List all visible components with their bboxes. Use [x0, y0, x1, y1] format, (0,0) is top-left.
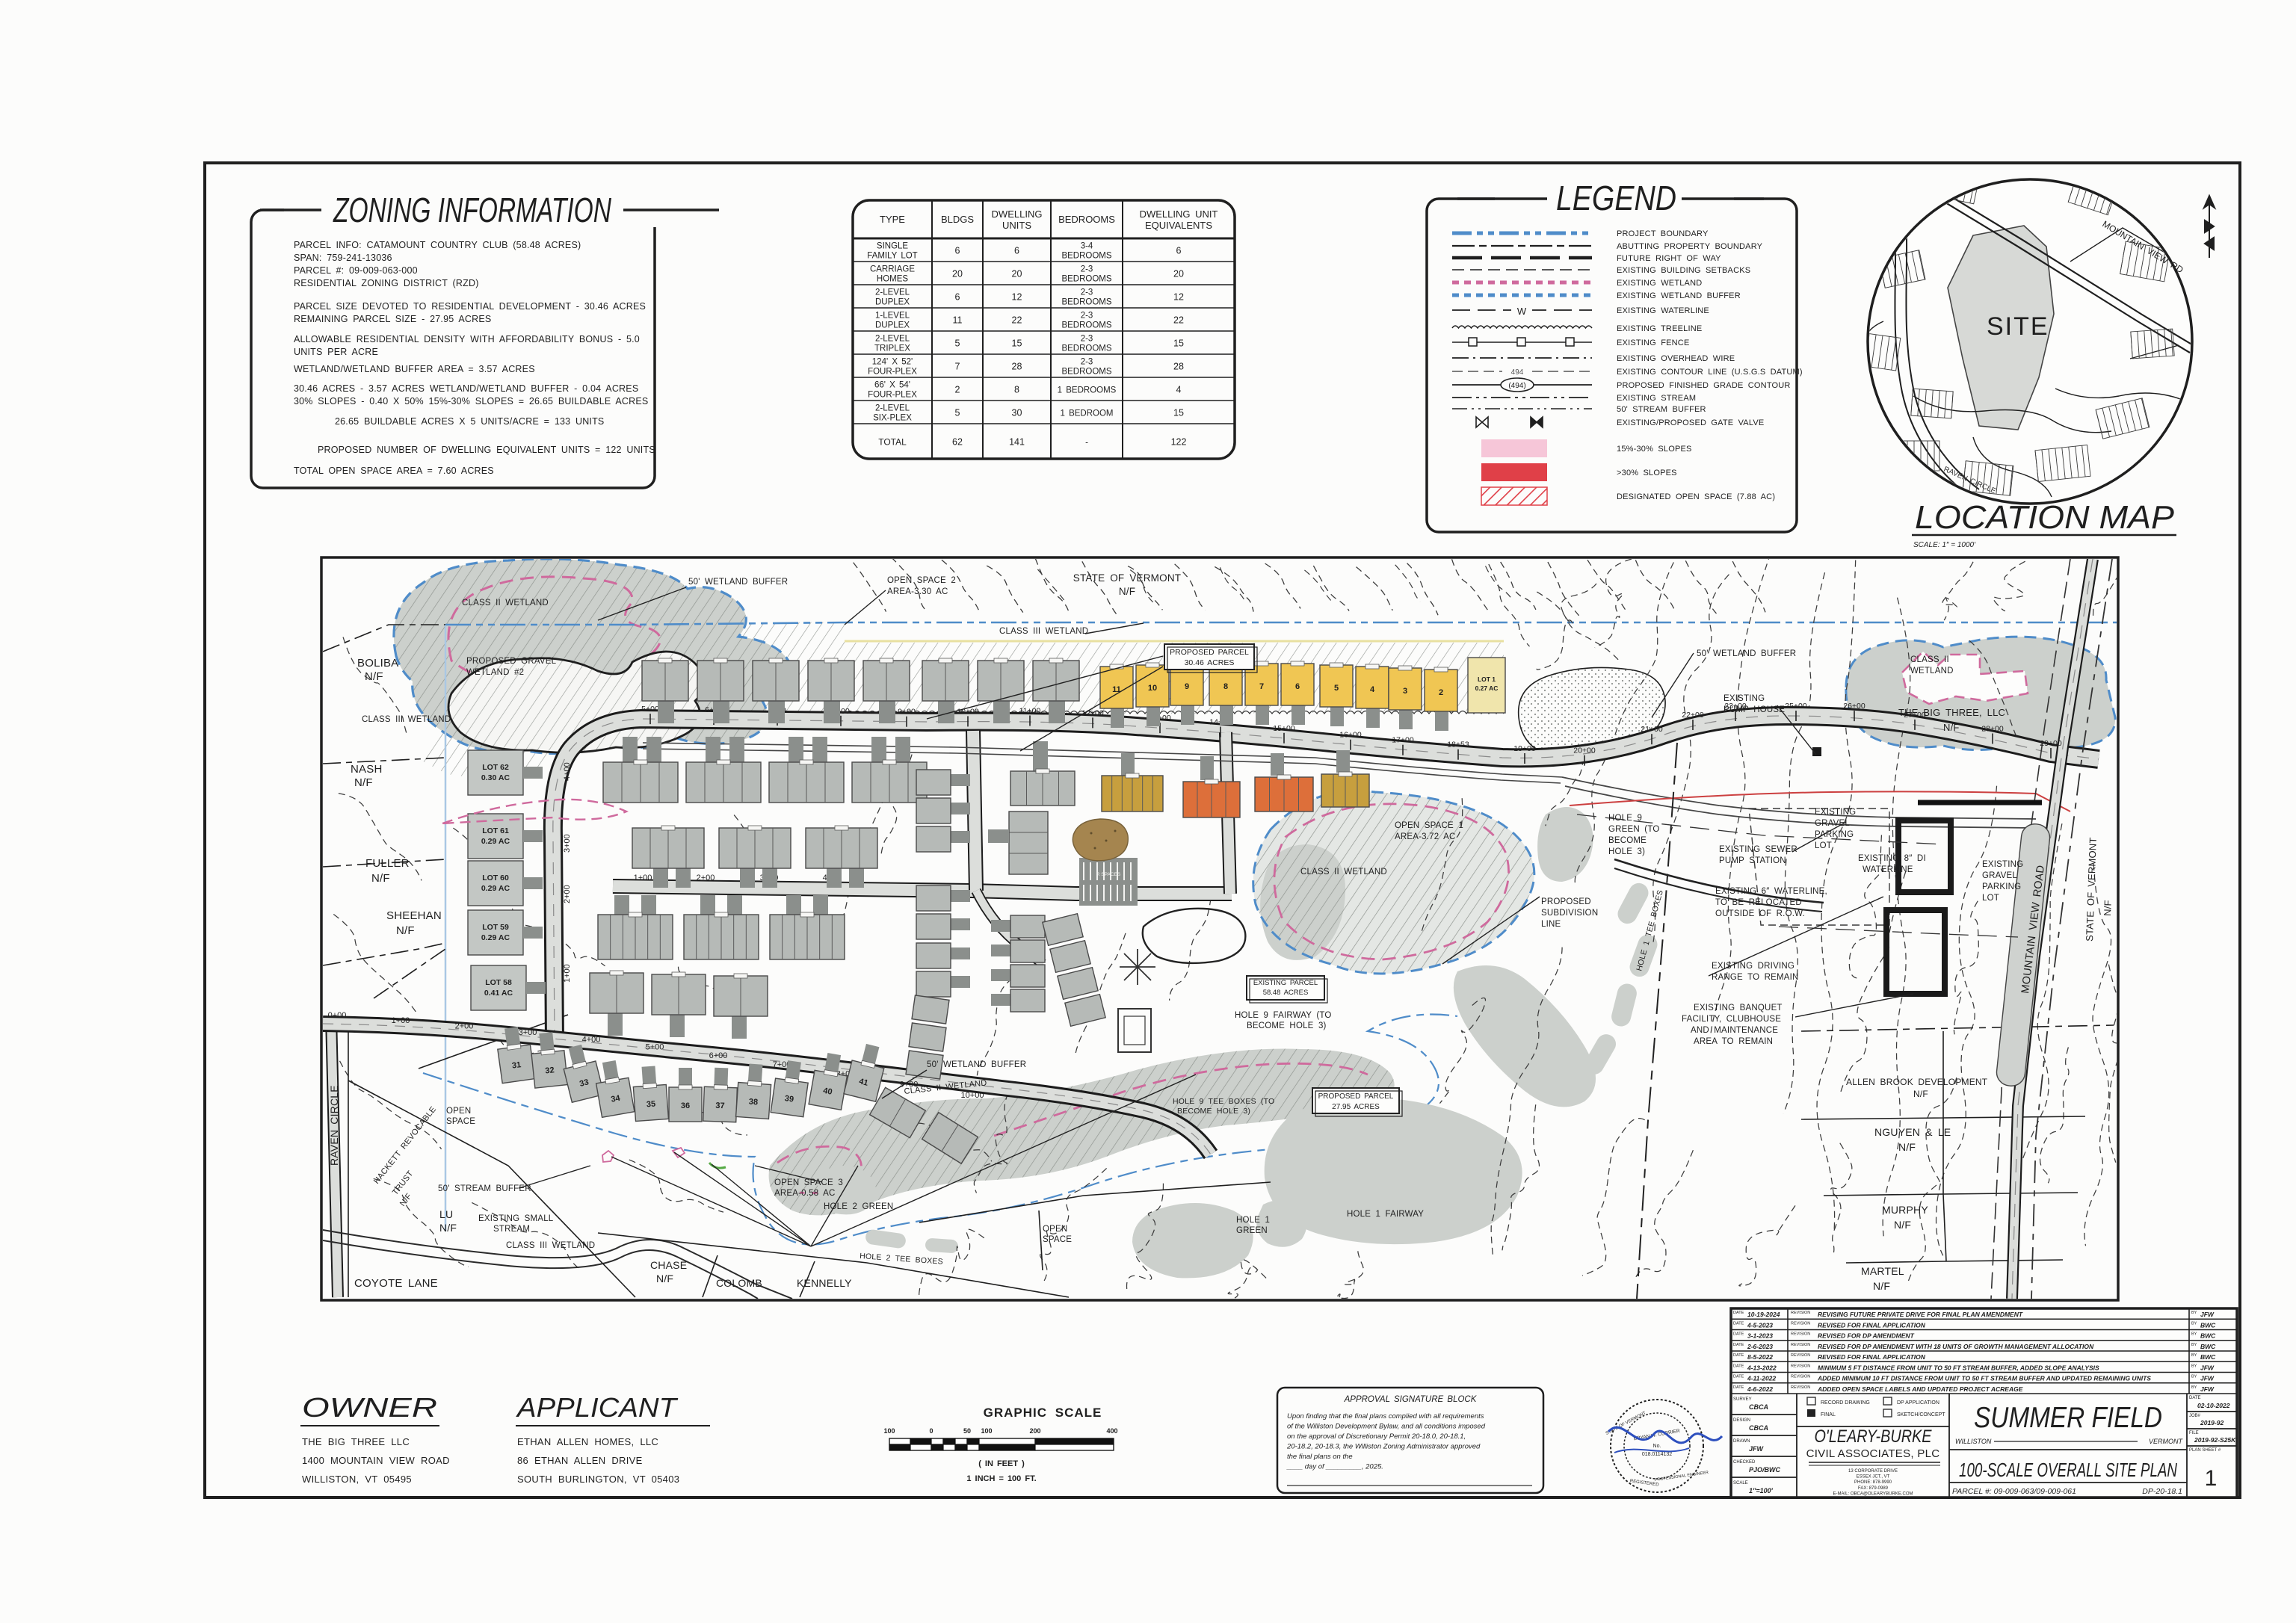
svg-text:26+00: 26+00 — [1843, 702, 1865, 711]
svg-text:10-19-2024: 10-19-2024 — [1747, 1311, 1780, 1318]
svg-text:2: 2 — [955, 385, 960, 395]
svg-text:OPEN SPACE 1: OPEN SPACE 1 — [1395, 821, 1463, 830]
svg-text:MINIMUM 5 FT DISTANCE FROM UNI: MINIMUM 5 FT DISTANCE FROM UNIT TO 50 FT… — [1818, 1364, 2099, 1371]
svg-text:50' STREAM BUFFER: 50' STREAM BUFFER — [438, 1184, 531, 1193]
svg-text:27.95 ACRES: 27.95 ACRES — [1332, 1103, 1380, 1111]
svg-text:FOUR-PLEX: FOUR-PLEX — [868, 391, 917, 400]
svg-text:DESIGNATED OPEN SPACE (7.88 AC: DESIGNATED OPEN SPACE (7.88 AC) — [1617, 492, 1775, 501]
svg-text:2-3: 2-3 — [1081, 358, 1093, 367]
svg-text:21+00: 21+00 — [1641, 725, 1663, 734]
svg-text:SINGLE: SINGLE — [877, 242, 909, 251]
svg-text:on the approval of Discretiona: on the approval of Discretionary Permit … — [1287, 1432, 1466, 1441]
svg-text:W: W — [1517, 306, 1527, 317]
svg-text:TYPE: TYPE — [880, 214, 905, 225]
svg-text:JOB#: JOB# — [2189, 1414, 2201, 1418]
svg-text:1+00: 1+00 — [392, 1016, 410, 1025]
svg-text:MARTEL: MARTEL — [1861, 1265, 1904, 1277]
svg-text:STATE OF VERMONT: STATE OF VERMONT — [1073, 572, 1181, 584]
svg-text:DATE: DATE — [1733, 1364, 1744, 1368]
svg-text:9+00: 9+00 — [898, 708, 916, 717]
svg-text:018.0114132: 018.0114132 — [1642, 1452, 1672, 1457]
svg-text:31: 31 — [511, 1060, 522, 1071]
svg-text:4: 4 — [1370, 685, 1375, 694]
svg-text:LOT 1: LOT 1 — [1478, 676, 1496, 683]
svg-text:12: 12 — [1173, 292, 1184, 303]
svg-text:No.: No. — [1653, 1444, 1661, 1449]
svg-text:15%-30% SLOPES: 15%-30% SLOPES — [1617, 445, 1692, 454]
svg-text:ESSEX JCT., VT: ESSEX JCT., VT — [1857, 1475, 1890, 1480]
svg-text:BEDROOMS: BEDROOMS — [1061, 344, 1111, 353]
svg-text:DP-20-18.1: DP-20-18.1 — [2142, 1487, 2182, 1496]
svg-text:UNITS: UNITS — [1002, 220, 1031, 231]
svg-text:TRIPLEX: TRIPLEX — [874, 344, 910, 353]
svg-text:APPROVAL SIGNATURE BLOCK: APPROVAL SIGNATURE BLOCK — [1344, 1395, 1478, 1404]
svg-text:50' STREAM BUFFER: 50' STREAM BUFFER — [1617, 405, 1706, 414]
svg-text:25+00: 25+00 — [1785, 702, 1807, 711]
svg-text:LOT 61: LOT 61 — [482, 826, 509, 835]
svg-text:BWC: BWC — [2200, 1321, 2216, 1329]
svg-text:PARCEL SIZE DEVOTED TO RESIDEN: PARCEL SIZE DEVOTED TO RESIDENTIAL DEVEL… — [294, 301, 646, 312]
svg-text:RECORD DRAWING: RECORD DRAWING — [1821, 1400, 1870, 1406]
svg-text:EXISTING: EXISTING — [1982, 860, 2023, 869]
svg-text:THE BIG THREE, LLC: THE BIG THREE, LLC — [1898, 707, 2005, 718]
svg-text:2-LEVEL: 2-LEVEL — [875, 288, 910, 297]
svg-text:OPEN: OPEN — [1043, 1225, 1067, 1234]
svg-text:EXISTING OVERHEAD WIRE: EXISTING OVERHEAD WIRE — [1617, 354, 1735, 363]
svg-text:DATE: DATE — [1733, 1321, 1744, 1326]
svg-text:of the Williston Development B: of the Williston Development Bylaw, and … — [1287, 1423, 1486, 1431]
svg-text:N/F: N/F — [396, 924, 415, 937]
svg-text:36: 36 — [681, 1101, 690, 1110]
svg-text:28: 28 — [1012, 362, 1022, 372]
svg-text:DATE: DATE — [1733, 1343, 1744, 1347]
svg-text:N/F: N/F — [1913, 1089, 1928, 1099]
svg-text:PROPOSED PARCEL: PROPOSED PARCEL — [1170, 648, 1249, 657]
svg-text:N/F: N/F — [354, 776, 373, 789]
svg-text:494: 494 — [1511, 368, 1524, 377]
svg-text:COLOMB: COLOMB — [716, 1277, 762, 1289]
svg-text:2-LEVEL: 2-LEVEL — [875, 335, 910, 344]
svg-text:32: 32 — [545, 1066, 555, 1075]
svg-text:the final plans on the: the final plans on the — [1287, 1453, 1353, 1461]
svg-text:RAVEN CIRCLE: RAVEN CIRCLE — [328, 1085, 340, 1166]
svg-text:50' WETLAND BUFFER: 50' WETLAND BUFFER — [1697, 649, 1796, 658]
svg-text:20-18.2, 20-18.3, the Willist: 20-18.2, 20-18.3, the Williston Zoning A… — [1286, 1443, 1481, 1451]
svg-text:BY: BY — [2191, 1385, 2197, 1390]
svg-text:FAX: 879-0989: FAX: 879-0989 — [1858, 1486, 1889, 1491]
svg-text:SCALE: 1″ = 1000′: SCALE: 1″ = 1000′ — [1913, 541, 1976, 549]
svg-text:22: 22 — [1012, 315, 1022, 326]
svg-text:0.30 AC: 0.30 AC — [481, 773, 510, 782]
svg-text:SOUTH BURLINGTON, VT 05403: SOUTH BURLINGTON, VT 05403 — [517, 1474, 679, 1485]
svg-text:100: 100 — [883, 1427, 895, 1435]
svg-text:BY: BY — [2191, 1364, 2197, 1368]
svg-text:SPACE: SPACE — [446, 1117, 475, 1126]
svg-text:DATE: DATE — [1733, 1353, 1744, 1358]
svg-text:PARCEL #: 09-009-063/09-009-06: PARCEL #: 09-009-063/09-009-061 — [1952, 1487, 2076, 1496]
svg-text:DRAWN: DRAWN — [1733, 1439, 1750, 1444]
svg-text:2019-92-S25K: 2019-92-S25K — [2194, 1436, 2236, 1444]
svg-text:3-4: 3-4 — [1081, 242, 1093, 251]
svg-text:9: 9 — [1185, 682, 1189, 691]
svg-text:5: 5 — [955, 338, 960, 349]
svg-text:6: 6 — [955, 246, 960, 256]
svg-text:SUMMER FIELD: SUMMER FIELD — [1974, 1402, 2162, 1434]
svg-text:20: 20 — [952, 269, 963, 279]
svg-text:28+00: 28+00 — [1981, 725, 2004, 734]
svg-text:2-3: 2-3 — [1081, 265, 1093, 274]
svg-text:15: 15 — [1173, 408, 1184, 418]
svg-text:20+00: 20+00 — [1573, 746, 1596, 755]
svg-text:DUPLEX: DUPLEX — [875, 321, 910, 330]
svg-text:EXISTING 6″ WATERLINE,: EXISTING 6″ WATERLINE, — [1715, 887, 1827, 896]
svg-text:30.46 ACRES: 30.46 ACRES — [1185, 658, 1235, 667]
svg-text:PROJECT BOUNDARY: PROJECT BOUNDARY — [1617, 229, 1709, 238]
svg-text:N/F: N/F — [1873, 1280, 1890, 1292]
svg-text:86 ETHAN ALLEN DRIVE: 86 ETHAN ALLEN DRIVE — [517, 1455, 643, 1466]
svg-text:AREA-3.30 AC: AREA-3.30 AC — [887, 587, 948, 596]
svg-text:28: 28 — [1173, 362, 1184, 372]
svg-text:GRAVEL: GRAVEL — [1982, 871, 2017, 880]
svg-text:4: 4 — [1176, 385, 1182, 395]
svg-text:1-LEVEL: 1-LEVEL — [875, 312, 910, 321]
svg-text:35: 35 — [646, 1100, 656, 1110]
svg-text:FUTURE RIGHT OF WAY: FUTURE RIGHT OF WAY — [1617, 254, 1721, 263]
svg-text:0+00: 0+00 — [328, 1011, 347, 1020]
svg-text:DUPLEX: DUPLEX — [875, 298, 910, 307]
svg-text:TOTAL: TOTAL — [878, 437, 907, 448]
svg-text:PARKING: PARKING — [1815, 830, 1854, 839]
svg-text:10+00: 10+00 — [961, 1091, 984, 1100]
svg-text:2+00: 2+00 — [697, 874, 715, 882]
svg-text:2: 2 — [1439, 688, 1443, 697]
svg-text:4-6-2022: 4-6-2022 — [1747, 1385, 1773, 1393]
svg-text:CLASS II WETLAND: CLASS II WETLAND — [462, 599, 549, 608]
svg-text:WILLISTON: WILLISTON — [1955, 1438, 1992, 1445]
svg-text:DATE: DATE — [2189, 1396, 2201, 1400]
svg-text:TO BE RELOCATED: TO BE RELOCATED — [1715, 898, 1802, 907]
svg-text:1400 MOUNTAIN VIEW ROAD: 1400 MOUNTAIN VIEW ROAD — [302, 1455, 450, 1466]
svg-text:GREEN (TO: GREEN (TO — [1608, 825, 1659, 834]
svg-text:BEDROOMS: BEDROOMS — [1061, 275, 1111, 284]
svg-text:____ day of _________, 2025.: ____ day of _________, 2025. — [1286, 1463, 1383, 1471]
svg-text:EXISTING CONTOUR LINE (U.S.G.S: EXISTING CONTOUR LINE (U.S.G.S DATUM) — [1617, 368, 1803, 377]
svg-text:CLASS III WETLAND: CLASS III WETLAND — [506, 1241, 595, 1250]
svg-text:SKETCH/CONCEPT: SKETCH/CONCEPT — [1897, 1412, 1945, 1418]
svg-text:EXISTING: EXISTING — [1815, 808, 1856, 817]
svg-text:EXISTING BUILDING SETBACKS: EXISTING BUILDING SETBACKS — [1617, 266, 1750, 275]
svg-text:6: 6 — [955, 292, 960, 303]
svg-text:16+00: 16+00 — [1339, 731, 1362, 740]
svg-text:11: 11 — [1112, 685, 1121, 694]
svg-text:15+00: 15+00 — [1273, 724, 1295, 733]
svg-text:LINE: LINE — [1541, 920, 1561, 929]
svg-text:CBCA: CBCA — [1749, 1403, 1768, 1411]
svg-text:8: 8 — [1223, 682, 1228, 691]
svg-text:SCALE: SCALE — [1733, 1481, 1748, 1486]
svg-text:AND MAINTENANCE: AND MAINTENANCE — [1691, 1026, 1778, 1035]
svg-text:>30% SLOPES: >30% SLOPES — [1617, 469, 1677, 477]
svg-text:BEDROOMS: BEDROOMS — [1061, 321, 1111, 330]
svg-text:6: 6 — [1295, 682, 1300, 691]
svg-text:EQUIVALENTS: EQUIVALENTS — [1145, 220, 1212, 231]
svg-text:1 INCH = 100 FT.: 1 INCH = 100 FT. — [966, 1474, 1036, 1483]
svg-text:30: 30 — [1012, 408, 1022, 418]
svg-text:WILLISTON, VT 05495: WILLISTON, VT 05495 — [302, 1474, 412, 1485]
svg-text:COYOTE LANE: COYOTE LANE — [354, 1277, 438, 1290]
svg-text:O'LEARY-BURKE: O'LEARY-BURKE — [1815, 1426, 1933, 1447]
svg-text:2+00: 2+00 — [563, 885, 572, 903]
svg-text:N/F: N/F — [365, 670, 383, 683]
svg-text:GRAVEL: GRAVEL — [1815, 819, 1850, 828]
svg-text:REVISION: REVISION — [1791, 1364, 1810, 1368]
svg-text:EXISTING BANQUET: EXISTING BANQUET — [1694, 1004, 1783, 1013]
svg-text:BEDROOMS: BEDROOMS — [1061, 368, 1111, 377]
svg-text:OUTSIDE OF R.O.W.: OUTSIDE OF R.O.W. — [1715, 909, 1805, 918]
svg-text:RANGE TO REMAIN: RANGE TO REMAIN — [1712, 973, 1799, 982]
svg-text:BECOME HOLE 3): BECOME HOLE 3) — [1247, 1021, 1327, 1030]
svg-text:CHASE: CHASE — [650, 1259, 687, 1271]
svg-text:( IN FEET ): ( IN FEET ) — [978, 1459, 1025, 1468]
svg-text:N/F: N/F — [2102, 900, 2114, 916]
svg-text:100: 100 — [981, 1427, 992, 1435]
svg-text:GRAPHIC SCALE: GRAPHIC SCALE — [984, 1406, 1102, 1420]
svg-text:ALLEN BROOK DEVELOPMENT: ALLEN BROOK DEVELOPMENT — [1846, 1077, 1988, 1087]
svg-text:PROPOSED GRAVEL: PROPOSED GRAVEL — [466, 657, 557, 666]
svg-text:SPACE: SPACE — [1043, 1235, 1072, 1244]
svg-text:DATE: DATE — [1733, 1375, 1744, 1379]
svg-text:5: 5 — [1334, 684, 1339, 693]
svg-text:LOT 62: LOT 62 — [482, 763, 509, 772]
svg-text:AREA-3.72 AC: AREA-3.72 AC — [1395, 832, 1455, 841]
svg-text:1+00: 1+00 — [563, 964, 572, 983]
svg-text:REVISION: REVISION — [1791, 1385, 1810, 1390]
svg-text:N/F: N/F — [656, 1273, 673, 1285]
svg-text:PARCEL #: 09-009-063-000: PARCEL #: 09-009-063-000 — [294, 265, 418, 276]
svg-text:66' X 54': 66' X 54' — [874, 381, 910, 390]
svg-text:BWC: BWC — [2200, 1343, 2216, 1350]
svg-text:11: 11 — [953, 315, 963, 326]
svg-text:10+00: 10+00 — [957, 707, 979, 716]
svg-text:FAMILY LOT: FAMILY LOT — [867, 252, 917, 261]
svg-text:ADDED MINIMUM 10 FT DISTANCE F: ADDED MINIMUM 10 FT DISTANCE FROM UNIT T… — [1817, 1375, 2151, 1382]
svg-text:200: 200 — [1029, 1427, 1040, 1435]
svg-text:37: 37 — [715, 1101, 725, 1110]
svg-text:HOLE 9: HOLE 9 — [1608, 814, 1642, 823]
svg-text:AREA-0.58 AC: AREA-0.58 AC — [774, 1189, 835, 1198]
svg-text:N/F: N/F — [439, 1222, 457, 1234]
svg-text:EXISTING: EXISTING — [1723, 694, 1765, 703]
svg-text:DATE: DATE — [1733, 1332, 1744, 1337]
svg-text:6: 6 — [1176, 246, 1182, 256]
svg-text:WATERLINE: WATERLINE — [1863, 865, 1913, 874]
svg-text:2-6-2023: 2-6-2023 — [1747, 1343, 1773, 1350]
svg-text:SPAN: 759-241-13036: SPAN: 759-241-13036 — [294, 253, 392, 263]
svg-text:15: 15 — [1173, 338, 1184, 349]
svg-text:N/F: N/F — [1894, 1219, 1911, 1231]
svg-text:DWELLING: DWELLING — [992, 208, 1043, 220]
svg-text:3: 3 — [1403, 687, 1407, 696]
svg-text:NASH: NASH — [351, 763, 382, 776]
svg-text:WETLAND: WETLAND — [1910, 667, 1954, 676]
svg-text:BECOME: BECOME — [1608, 836, 1647, 845]
svg-text:3+00: 3+00 — [519, 1028, 537, 1037]
svg-text:HOLE 9 FAIRWAY (TO: HOLE 9 FAIRWAY (TO — [1235, 1011, 1332, 1020]
svg-text:STREAM: STREAM — [493, 1225, 530, 1234]
svg-text:REVISION: REVISION — [1791, 1343, 1810, 1347]
svg-text:-: - — [1085, 439, 1088, 448]
svg-text:MURPHY: MURPHY — [1882, 1204, 1928, 1216]
svg-text:8: 8 — [1014, 385, 1019, 395]
svg-text:FACILITY, CLUBHOUSE: FACILITY, CLUBHOUSE — [1682, 1015, 1781, 1024]
svg-text:30.46 ACRES - 3.57 ACRES WETLA: 30.46 ACRES - 3.57 ACRES WETLAND/WETLAND… — [294, 383, 638, 394]
svg-text:EXISTING/PROPOSED GATE VALVE: EXISTING/PROPOSED GATE VALVE — [1617, 418, 1764, 427]
svg-text:2-3: 2-3 — [1081, 312, 1093, 321]
svg-text:7: 7 — [955, 362, 960, 372]
svg-text:DATE: DATE — [1733, 1385, 1744, 1390]
svg-text:19+00: 19+00 — [1513, 744, 1536, 753]
svg-text:18+53: 18+53 — [1447, 741, 1469, 749]
svg-text:141: 141 — [1009, 437, 1025, 448]
svg-text:40: 40 — [822, 1086, 833, 1097]
svg-text:BY: BY — [2191, 1332, 2197, 1337]
svg-text:2-3: 2-3 — [1081, 288, 1093, 297]
svg-text:0.29 AC: 0.29 AC — [481, 884, 510, 893]
svg-text:OPEN SPACE 3: OPEN SPACE 3 — [774, 1178, 843, 1187]
svg-text:LOT 58: LOT 58 — [485, 978, 512, 987]
svg-text:400: 400 — [1106, 1427, 1117, 1435]
svg-text:CLASS III WETLAND: CLASS III WETLAND — [362, 715, 451, 724]
svg-text:EXISTING FENCE: EXISTING FENCE — [1617, 338, 1689, 347]
svg-text:JFW: JFW — [2200, 1385, 2215, 1393]
svg-text:29+00: 29+00 — [2040, 739, 2062, 748]
svg-text:EXISTING WETLAND: EXISTING WETLAND — [1617, 279, 1702, 288]
svg-text:SURVEY: SURVEY — [1733, 1397, 1752, 1402]
svg-text:PROPOSED: PROPOSED — [1541, 897, 1591, 906]
svg-text:NGUYEN & LE: NGUYEN & LE — [1874, 1126, 1951, 1138]
svg-text:02-10-2022: 02-10-2022 — [2197, 1402, 2230, 1409]
svg-text:GREEN: GREEN — [1236, 1226, 1268, 1235]
svg-text:122: 122 — [1171, 437, 1187, 448]
svg-text:58.48 ACRES: 58.48 ACRES — [1263, 989, 1309, 997]
svg-text:LOT 59: LOT 59 — [482, 923, 509, 932]
svg-text:HOLE 1: HOLE 1 — [1236, 1216, 1270, 1225]
svg-text:LOT: LOT — [1982, 894, 1999, 903]
svg-text:1+00: 1+00 — [634, 874, 652, 882]
svg-text:4-5-2023: 4-5-2023 — [1747, 1321, 1773, 1329]
svg-text:PROPOSED NUMBER OF DWELLING EQ: PROPOSED NUMBER OF DWELLING EQUIVALENT U… — [318, 445, 655, 455]
svg-text:SIX-PLEX: SIX-PLEX — [873, 414, 912, 423]
svg-text:1 BEDROOMS: 1 BEDROOMS — [1058, 386, 1117, 395]
svg-text:PJO/BWC: PJO/BWC — [1749, 1466, 1781, 1474]
svg-text:THE BIG THREE LLC: THE BIG THREE LLC — [302, 1436, 410, 1447]
svg-text:BEDROOMS: BEDROOMS — [1061, 252, 1111, 261]
svg-text:20: 20 — [1173, 269, 1184, 279]
svg-text:BY: BY — [2191, 1353, 2197, 1358]
svg-text:OWNER: OWNER — [302, 1392, 437, 1423]
svg-text:CARRIAGE: CARRIAGE — [870, 265, 915, 274]
svg-text:39: 39 — [784, 1094, 794, 1104]
svg-text:4-13-2022: 4-13-2022 — [1747, 1364, 1777, 1371]
svg-text:REVISED FOR FINAL APPLICATION: REVISED FOR FINAL APPLICATION — [1818, 1321, 1926, 1329]
svg-text:REVISION: REVISION — [1791, 1311, 1810, 1315]
svg-text:REVISED FOR DP AMENDMENT: REVISED FOR DP AMENDMENT — [1818, 1332, 1915, 1340]
svg-text:PHONE: 878-9990: PHONE: 878-9990 — [1854, 1480, 1892, 1485]
svg-text:5+00: 5+00 — [641, 705, 659, 714]
svg-text:PROPOSED FINISHED GRADE CONTOU: PROPOSED FINISHED GRADE CONTOUR — [1617, 381, 1791, 390]
svg-text:BOLIBA: BOLIBA — [357, 657, 398, 670]
svg-text:5: 5 — [955, 408, 960, 418]
svg-text:0.41 AC: 0.41 AC — [484, 989, 513, 998]
svg-text:REVISED FOR DP AMENDMENT WITH: REVISED FOR DP AMENDMENT WITH 18 UNITS O… — [1818, 1343, 2094, 1350]
svg-text:REMAINING PARCEL SIZE - 27.95: REMAINING PARCEL SIZE - 27.95 ACRES — [294, 314, 491, 324]
svg-text:UNITS PER ACRE: UNITS PER ACRE — [294, 347, 378, 357]
svg-text:HOMES: HOMES — [877, 275, 909, 284]
svg-text:5+00: 5+00 — [646, 1043, 664, 1052]
svg-text:4+00: 4+00 — [582, 1035, 601, 1044]
svg-text:0.29 AC: 0.29 AC — [481, 837, 510, 846]
svg-text:WETLAND #2: WETLAND #2 — [466, 668, 524, 677]
svg-text:BWC: BWC — [2200, 1332, 2216, 1340]
svg-text:17+00: 17+00 — [1392, 736, 1414, 745]
svg-text:124' X 52': 124' X 52' — [872, 358, 913, 367]
svg-text:50: 50 — [963, 1427, 971, 1435]
svg-text:BY: BY — [2191, 1321, 2197, 1326]
svg-text:LOT 60: LOT 60 — [482, 874, 509, 882]
svg-text:4+00: 4+00 — [563, 762, 572, 781]
svg-text:ZONING INFORMATION: ZONING INFORMATION — [333, 191, 611, 229]
svg-text:HOLE 3): HOLE 3) — [1608, 847, 1645, 856]
svg-text:JFW: JFW — [2200, 1375, 2215, 1382]
svg-text:DESIGN: DESIGN — [1733, 1418, 1750, 1423]
svg-text:DATE: DATE — [1733, 1311, 1744, 1315]
svg-text:CLASS II WETLAND: CLASS II WETLAND — [1300, 868, 1387, 877]
svg-text:TOTAL OPEN SPACE AREA = 7.60 A: TOTAL OPEN SPACE AREA = 7.60 ACRES — [294, 466, 494, 476]
svg-text:EXISTING TREELINE: EXISTING TREELINE — [1617, 324, 1702, 333]
svg-text:FILE: FILE — [2189, 1431, 2199, 1435]
svg-text:Upon finding that the final pl: Upon finding that the final plans compli… — [1287, 1412, 1484, 1420]
svg-text:FOUR-PLEX: FOUR-PLEX — [868, 368, 917, 377]
svg-text:30% SLOPES - 0.40 X 50% 15%-30: 30% SLOPES - 0.40 X 50% 15%-30% SLOPES =… — [294, 396, 648, 406]
svg-text:N/F: N/F — [371, 872, 390, 885]
svg-text:N/F: N/F — [1898, 1141, 1916, 1153]
svg-text:EXISTING WATERLINE: EXISTING WATERLINE — [1617, 306, 1709, 315]
svg-text:OPEN: OPEN — [446, 1107, 471, 1116]
svg-text:1″=100′: 1″=100′ — [1749, 1487, 1774, 1494]
svg-text:FULLER: FULLER — [365, 857, 410, 870]
svg-text:REVISION: REVISION — [1791, 1332, 1810, 1337]
svg-text:EXISTING PARCEL: EXISTING PARCEL — [1253, 979, 1318, 987]
svg-text:REVISION: REVISION — [1791, 1375, 1810, 1379]
svg-text:SITE: SITE — [1987, 312, 2049, 341]
svg-text:(494): (494) — [1508, 382, 1525, 390]
svg-text:JFW: JFW — [2200, 1311, 2215, 1318]
svg-text:R SPACES: R SPACES — [1096, 872, 1121, 877]
svg-text:CLASS II: CLASS II — [1910, 655, 1949, 664]
svg-text:EXISTING WETLAND BUFFER: EXISTING WETLAND BUFFER — [1617, 291, 1741, 300]
svg-text:ADDED OPEN SPACE LABELS AND UP: ADDED OPEN SPACE LABELS AND UPDATED PROJ… — [1817, 1385, 2023, 1393]
svg-text:100-SCALE OVERALL SITE PLAN: 100-SCALE OVERALL SITE PLAN — [1959, 1459, 2177, 1481]
svg-text:EXISTING STREAM: EXISTING STREAM — [1617, 394, 1696, 403]
svg-text:RESIDENTIAL ZONING DISTRICT (R: RESIDENTIAL ZONING DISTRICT (RZD) — [294, 278, 479, 288]
svg-text:JFW: JFW — [1749, 1445, 1765, 1453]
svg-text:22+00: 22+00 — [1682, 711, 1704, 720]
svg-text:REVISED FOR FINAL APPLICATION: REVISED FOR FINAL APPLICATION — [1818, 1353, 1926, 1361]
svg-text:ALLOWABLE RESIDENTIAL DENSITY: ALLOWABLE RESIDENTIAL DENSITY WITH AFFOR… — [294, 334, 640, 344]
svg-text:PLAN SHEET #: PLAN SHEET # — [2189, 1448, 2221, 1453]
svg-text:HOLE 1 FAIRWAY: HOLE 1 FAIRWAY — [1347, 1210, 1424, 1219]
svg-text:3-1-2023: 3-1-2023 — [1747, 1332, 1773, 1340]
